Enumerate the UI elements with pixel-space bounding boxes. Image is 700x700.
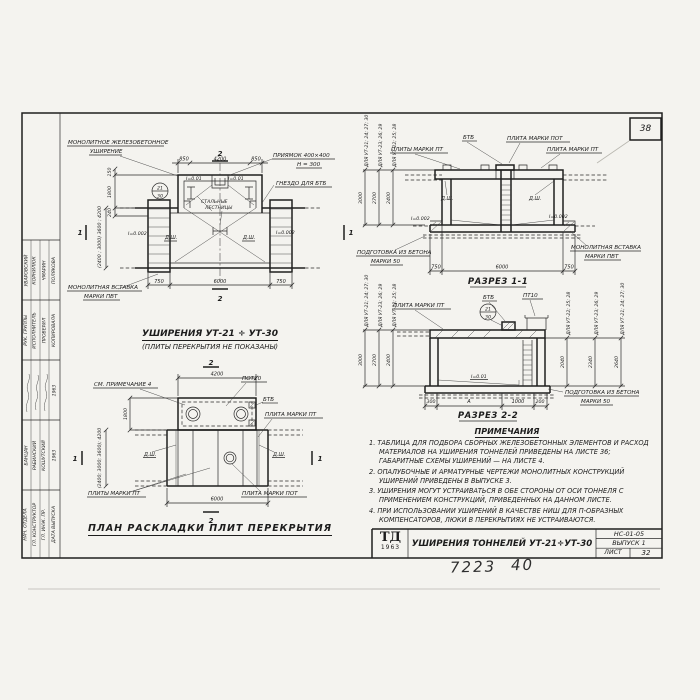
slope-label: i=0.002 bbox=[128, 231, 147, 237]
joint-label: Д.ш. bbox=[528, 196, 541, 202]
slope-label: i=0.002 bbox=[411, 216, 430, 222]
joint-label: Д.ш. bbox=[272, 452, 285, 458]
logo-year: 1963 bbox=[374, 544, 407, 551]
stamp-name: Уваровский bbox=[24, 254, 29, 286]
dim-text: 200 bbox=[536, 399, 545, 405]
stamp-name-cell: Корнилюк bbox=[31, 240, 40, 300]
bt6-stub bbox=[502, 322, 515, 330]
dim-range-text: (2400 ; 3000) 3600 ; 4200 bbox=[97, 206, 103, 268]
stamp-name-cell: Банцан bbox=[22, 420, 31, 490]
dim-text: 1800 bbox=[123, 408, 129, 420]
stamp-role: Копировала bbox=[52, 313, 57, 346]
dim-text: 750 bbox=[431, 265, 441, 271]
dim-text: 3000 bbox=[358, 192, 364, 204]
callout-prep: Подготовка из бетона bbox=[357, 250, 432, 256]
stamp-signature-scribbles bbox=[26, 374, 47, 412]
callout-pot: Плита марки ПОТ bbox=[242, 491, 298, 497]
bottom-dimension: 750 6000 750 bbox=[428, 232, 577, 275]
dim-text: 2400 bbox=[386, 354, 392, 366]
stamp-name: Банцан bbox=[24, 445, 29, 465]
section2-callouts: Плита марки ПТ БТб ПТ10 21 30 i=0.01 Под… bbox=[392, 293, 640, 405]
scanned-drawing-sheet: { "sheet": { "corner_number": "38", "han… bbox=[0, 0, 700, 700]
notes-header: Примечания bbox=[357, 427, 657, 436]
leader-lines bbox=[118, 156, 274, 289]
bottom-dimension: 300 А 1000 200 bbox=[423, 393, 549, 410]
callout-note-ref: См. примечание 4 bbox=[94, 382, 152, 388]
callout-pt: Плита марки ПТ bbox=[393, 303, 445, 309]
stamp-role: Рук. группы bbox=[24, 315, 29, 346]
logo-name: ТД bbox=[374, 531, 407, 544]
dim-variant-label: Для УТ-21; 24; 27; 30 bbox=[364, 115, 370, 168]
handwritten-number: 7223 bbox=[450, 557, 497, 576]
dim-text: 150 bbox=[107, 168, 113, 177]
slab-band bbox=[430, 330, 545, 338]
callout-ladder: лестницы bbox=[204, 205, 233, 211]
dim-text: 850 bbox=[251, 157, 261, 163]
dim-text: 2340 bbox=[588, 356, 594, 368]
callout-insert: Монолитная вставка bbox=[571, 245, 641, 251]
handwritten-number: 40 bbox=[511, 556, 535, 575]
note-item: 4. При использовании уширений в качестве… bbox=[369, 507, 657, 525]
dimension-lines bbox=[104, 374, 270, 507]
joint-label: Д.ш. bbox=[440, 196, 453, 202]
dim-text: 750 bbox=[276, 279, 286, 285]
dim-text: 750 bbox=[154, 279, 164, 285]
slab-layout-title: План раскладки плит перекрытия bbox=[80, 523, 340, 534]
dim-variant-label: Для УТ-21; 24; 27; 30 bbox=[620, 283, 626, 336]
stamp-name: Кошутский bbox=[42, 440, 47, 471]
tunnel-walls bbox=[442, 179, 563, 225]
section-1-1-view: Для УТ-21; 24; 27; 30 Для УТ-23; 26; 29 … bbox=[355, 113, 660, 290]
joint-label: Д.ш. bbox=[242, 235, 255, 241]
dim-text: 6000 bbox=[211, 497, 224, 503]
left-dimension-group: Для УТ-21; 24; 27; 30 Для УТ-23; 26; 29 … bbox=[358, 275, 430, 389]
dim-text: 6000 bbox=[214, 279, 227, 285]
dim-text: 2700 bbox=[372, 192, 378, 204]
slope-label: i=0.002 bbox=[276, 230, 295, 236]
stamp-role-cell: Исполнитель bbox=[31, 300, 40, 360]
section-1-mark: 1 bbox=[349, 229, 354, 237]
plan-callouts: Монолитное железобетонное уширение Приям… bbox=[67, 140, 335, 300]
stamp-name-cell: Чмарин bbox=[40, 240, 49, 300]
callout-pt: Плита марки ПТ bbox=[547, 147, 599, 153]
callout-pt: Плита марки ПТ bbox=[265, 412, 317, 418]
stamp-role: Проверил bbox=[42, 317, 47, 343]
slope-label: i=0.002 bbox=[549, 214, 568, 220]
stamp-name: 1963 bbox=[52, 449, 57, 461]
stamp-role-cell: Копировала bbox=[49, 300, 60, 360]
section-title: Разрез 2-2 bbox=[458, 411, 518, 421]
slope-label: i=0.01 bbox=[228, 176, 244, 182]
right-dimension-group: Для УТ-22; 25; 28 Для УТ-23; 26; 29 Для … bbox=[545, 283, 626, 389]
bt6-column-ladder bbox=[496, 165, 514, 232]
left-dimension-group: Для УТ-21; 24; 27; 30 Для УТ-23; 26; 29 … bbox=[358, 115, 435, 228]
top-slab bbox=[178, 398, 256, 430]
stamp-role: Исполнитель bbox=[33, 312, 38, 348]
section-1-mark: 1 bbox=[73, 455, 78, 463]
section1-callouts: БТб Плита марки ПОТ Плиты марки ПТ Плита… bbox=[356, 135, 641, 265]
issue-label: Выпуск 1 bbox=[598, 539, 660, 549]
callout-prep: Подготовка из бетона bbox=[565, 390, 640, 396]
slope-label: i=0.01 bbox=[186, 176, 202, 182]
dim-text: 1800 bbox=[107, 186, 113, 198]
stamp-name-cell: Полякова bbox=[49, 240, 60, 300]
section-1-mark: 1 bbox=[318, 455, 323, 463]
plan-bottom-callouts: См. примечание 4 ПОТ10 БТб Плита марки П… bbox=[87, 376, 323, 497]
callout-pit: h = 300 bbox=[297, 162, 321, 168]
plan-title-text: Уширения УТ-21 ÷ УТ-30 bbox=[142, 329, 278, 341]
stamp-name-cell: Уваровский bbox=[22, 240, 31, 300]
element-mark-den: 30 bbox=[485, 315, 491, 321]
callout-pit: Приямок 400×400 bbox=[273, 153, 330, 159]
dim-text: 2700 bbox=[372, 354, 378, 366]
ladder bbox=[523, 340, 532, 386]
slope-label: i=0.01 bbox=[471, 374, 487, 380]
logo: ТД 1963 bbox=[374, 531, 407, 551]
note-item: 2. Опалубочные и арматурные чертежи моно… bbox=[369, 468, 657, 486]
walls-floor bbox=[419, 338, 555, 398]
section-2-mark: 2 bbox=[218, 295, 223, 303]
plan-dim-texts: 850 4200 850 750 6000 750 150 1800 240 (… bbox=[78, 150, 354, 303]
dim-variant-label: Для УТ-21; 24; 27; 30 bbox=[364, 275, 370, 328]
dim-text: 6000 bbox=[496, 265, 509, 271]
dim-text: А bbox=[466, 399, 471, 405]
callout-ladder: Стальные bbox=[201, 199, 227, 205]
tunnel-band bbox=[135, 430, 303, 486]
section-2-mark: 2 bbox=[218, 150, 223, 158]
dim-text: 1000 bbox=[512, 399, 525, 405]
callout-insert: марки ПВТ bbox=[84, 294, 118, 300]
stamp-role-cell: Нач. отдела bbox=[22, 490, 31, 558]
ground-lines bbox=[405, 175, 607, 226]
stamp-name-cell: Рабинский bbox=[31, 420, 40, 490]
sheet-number: 32 bbox=[632, 548, 660, 558]
floor-slope-line bbox=[438, 380, 519, 385]
stamp-year: 1963 bbox=[52, 384, 57, 396]
dim-variant-label: Для УТ-23; 26; 29 bbox=[378, 124, 384, 168]
section-1-mark: 1 bbox=[78, 229, 83, 237]
plan-subtitle: (Плиты перекрытия не показаны) bbox=[110, 343, 310, 351]
dim-text: 850 bbox=[179, 157, 189, 163]
stamp-role: Гл. конструктор bbox=[33, 502, 38, 545]
joint-label: Д.ш. bbox=[164, 235, 177, 241]
stamp-name-cell: Кошутский bbox=[40, 420, 49, 490]
stamp-role-cell: Проверил bbox=[40, 300, 49, 360]
dim-text: 2640 bbox=[614, 356, 620, 368]
note-item: 1. Таблица для подбора сборных железобет… bbox=[369, 439, 657, 466]
slab-layout-title-text: План раскладки плит перекрытия bbox=[88, 523, 332, 536]
dim-variant-label: Для УТ-23; 26; 29 bbox=[378, 284, 384, 328]
dim-range-text: (2400; 3000; 3600); 4200 bbox=[97, 428, 103, 489]
stamp-name: Корнилюк bbox=[33, 256, 38, 284]
stamp-role: Гл. инж. пр. bbox=[42, 508, 47, 539]
callout-pot10: ПОТ10 bbox=[242, 376, 262, 382]
floor-slab bbox=[423, 225, 581, 238]
stamp-role-cell: Гл. инж. пр. bbox=[40, 490, 49, 558]
section-2-2-view: Для УТ-21; 24; 27; 30 Для УТ-23; 26; 29 … bbox=[355, 290, 660, 430]
callout-widening: уширение bbox=[90, 149, 123, 155]
stamp-role-cell: Рук. группы bbox=[22, 300, 31, 360]
slab-layout-plan: См. примечание 4 ПОТ10 БТб Плита марки П… bbox=[60, 358, 355, 518]
stamp-year-cell: 1963 bbox=[49, 360, 60, 420]
callout-prep: марки 50 bbox=[371, 259, 401, 265]
element-mark-num: 21 bbox=[485, 307, 491, 313]
callout-pts: Плиты марки ПТ bbox=[391, 147, 444, 153]
element-mark-num: 21 bbox=[157, 186, 163, 192]
dim-text: 2040 bbox=[560, 356, 566, 368]
joint-label: Д.ш. bbox=[143, 452, 156, 458]
dim-text: 750 bbox=[564, 265, 574, 271]
note-item: 3. Уширения могут устраиваться в обе сто… bbox=[369, 487, 657, 505]
callout-prep: марки 50 bbox=[581, 399, 611, 405]
callout-insert: Монолитная вставка bbox=[68, 285, 138, 291]
sheet-label: Лист bbox=[598, 548, 628, 558]
plan-title: Уширения УТ-21 ÷ УТ-30 bbox=[120, 329, 300, 339]
doc-code: НС-01-05 bbox=[598, 529, 660, 539]
stamp-name: Полякова bbox=[52, 257, 57, 284]
callout-socket: Гнездо для БТб bbox=[276, 181, 326, 187]
callout-bt6: БТб bbox=[483, 295, 494, 301]
ground-lines bbox=[397, 332, 430, 336]
stamp-name-cell: 1963 bbox=[49, 420, 60, 490]
stamp-role-cell: Дата выпуска bbox=[49, 490, 60, 558]
plan-view-widening: Монолитное железобетонное уширение Приям… bbox=[60, 113, 360, 313]
dim-text: 2400 bbox=[386, 192, 392, 204]
title-block-title: Уширения тоннелей УТ-21÷УТ-30 bbox=[410, 529, 594, 558]
pt10-parapet bbox=[525, 315, 548, 330]
callout-bt6: БТб bbox=[263, 397, 274, 403]
callout-pt10: ПТ10 bbox=[523, 293, 538, 299]
dim-text: 300 bbox=[427, 399, 436, 405]
notes-header-text: Примечания bbox=[475, 427, 540, 438]
callout-pot: Плита марки ПОТ bbox=[507, 136, 563, 142]
element-mark-den: 30 bbox=[157, 194, 163, 200]
stamp-name: Чмарин bbox=[42, 260, 47, 280]
callout-widening: Монолитное железобетонное bbox=[68, 140, 169, 146]
dim-text: 4200 bbox=[211, 372, 224, 378]
dim-variant-label: Для УТ-22; 25; 28 bbox=[566, 292, 572, 336]
callout-bt6: БТб bbox=[463, 135, 474, 141]
stamp-name: Рабинский bbox=[33, 440, 38, 469]
callout-pts: Плиты марки ПТ bbox=[88, 491, 141, 497]
dim-variant-label: Для УТ-22; 25; 28 bbox=[392, 124, 398, 168]
notes-block: Примечания 1. Таблица для подбора сборны… bbox=[357, 427, 657, 527]
stamp-role: Дата выпуска bbox=[52, 506, 57, 543]
section-2-mark: 2 bbox=[209, 359, 214, 367]
dim-text: 240 bbox=[107, 208, 113, 217]
dim-text: 3000 bbox=[358, 354, 364, 366]
dim-variant-label: Для УТ-23; 26; 29 bbox=[594, 292, 600, 336]
callout-insert: марки ПВТ bbox=[585, 254, 619, 260]
stamp-role: Нач. отдела bbox=[24, 508, 29, 540]
stamp-role-cell: Гл. конструктор bbox=[31, 490, 40, 558]
section-title: Разрез 1-1 bbox=[468, 277, 528, 287]
